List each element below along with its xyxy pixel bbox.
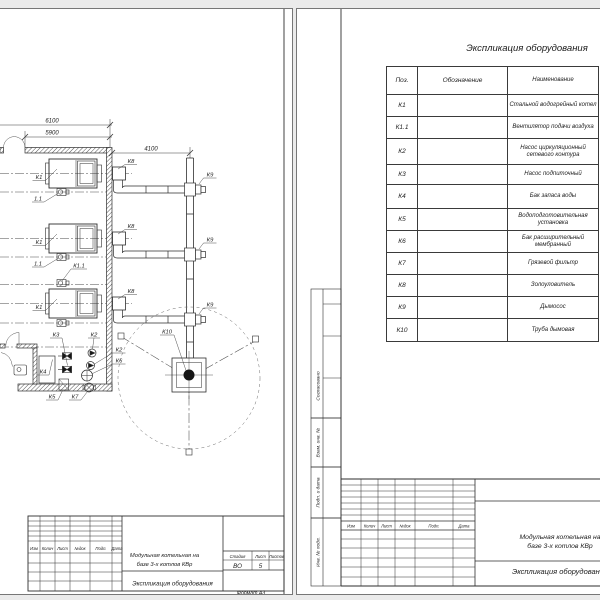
doc-title: Экспликация оборудования — [475, 567, 600, 576]
cell-name: Насос циркуляционный сетевого контура — [508, 139, 599, 165]
cell-designation — [418, 275, 508, 297]
drawing-sheet-list: Согласовано Взам. инв. № Подп. и дата Ин… — [296, 8, 600, 595]
cell-name: Золоуловитель — [508, 275, 599, 297]
cell-name: Труба дымовая — [508, 319, 599, 342]
cell-name: Насос подпиточный — [508, 165, 599, 185]
dim-inner: 5900 — [45, 131, 59, 137]
label-k9: К9 — [207, 303, 214, 309]
cell-pos: К1 — [387, 95, 418, 117]
label-k8: К8 — [128, 159, 135, 165]
col-header-name: Наименование — [508, 67, 599, 95]
network-pumps-k2 — [87, 349, 97, 370]
table-row: К5 Водоподготовительная установка — [387, 209, 599, 231]
cell-name: Водоподготовительная установка — [508, 209, 599, 231]
stamp-replace-inv: Взам. инв. № — [316, 428, 322, 458]
label-k8: К8 — [128, 289, 135, 295]
cell-designation — [418, 231, 508, 253]
table-row: К4 Бак запаса воды — [387, 185, 599, 209]
cell-name: Бак запаса воды — [508, 185, 599, 209]
label-k9: К9 — [207, 173, 214, 179]
label-k1: К1 — [36, 175, 43, 181]
label-k1-1: К1.1 — [73, 264, 84, 270]
table-row: К10 Труба дымовая — [387, 319, 599, 342]
cell-designation — [418, 95, 508, 117]
label-k7: К7 — [72, 395, 79, 401]
table-row: К8 Золоуловитель — [387, 275, 599, 297]
cell-pos: К6 — [387, 231, 418, 253]
chimney — [118, 307, 260, 455]
cell-pos: К4 — [387, 185, 418, 209]
rev-col: Колич — [42, 546, 54, 551]
rev-col: Подп. — [428, 524, 439, 529]
sink — [14, 365, 27, 375]
chimney-barrel — [184, 370, 195, 381]
sheets-label: Листов — [268, 554, 285, 559]
page-title: Экспликация оборудования — [427, 43, 600, 54]
sheet-value: 5 — [259, 563, 263, 570]
interior-doors — [1, 333, 19, 367]
project-name: Модульная котельная на базе 3-х котлов К… — [114, 552, 215, 569]
label-k9: К9 — [207, 238, 214, 244]
rev-col: Дата — [110, 546, 123, 551]
rev-col: Лист — [380, 524, 392, 529]
stamp-boxes — [311, 289, 341, 586]
label-k5: К5 — [49, 395, 56, 401]
guy-anchors — [118, 333, 259, 455]
stamp-agreed: Согласовано — [316, 371, 322, 401]
table-row: К1 Стальной водогрейный котел — [387, 95, 599, 117]
table-row: К9 Дымосос — [387, 297, 599, 319]
rev-col: Колич — [364, 524, 376, 529]
dim-total: 6100 — [45, 119, 59, 125]
rev-col: Лист — [56, 546, 68, 551]
sheet-label: Лист — [254, 554, 266, 559]
format-note: Формат А3 — [237, 591, 265, 596]
cell-name: Бак расширительный мембранный — [508, 231, 599, 253]
stage-value: ВО — [233, 563, 242, 570]
rev-col: Изм — [30, 546, 38, 551]
cell-designation — [418, 185, 508, 209]
smoke-exhausters — [185, 183, 206, 326]
label-k1-1-short: 1.1 — [34, 262, 42, 268]
table-row: К3 Насос подпиточный — [387, 165, 599, 185]
drawing-sheet-plan: 6100 5900 4100 К1 К1 К1 1.1 1.1 К1.1 К8 … — [0, 8, 293, 595]
table-row: К1.1 Вентилятор подачи воздуха — [387, 117, 599, 139]
label-k6: К6 — [116, 359, 123, 365]
project-name: Модульная котельная на базе 3-х котлов К… — [475, 533, 600, 551]
rev-col: Дата — [457, 524, 470, 529]
rev-col: №док — [74, 546, 86, 551]
rev-col: Изм — [347, 524, 355, 529]
makeup-pumps-k3 — [58, 353, 72, 373]
cell-name: Дымосос — [508, 297, 599, 319]
cell-designation — [418, 165, 508, 185]
table-row: К2 Насос циркуляционный сетевого контура — [387, 139, 599, 165]
table-header-row: Поз. Обозначение Наименование — [387, 67, 599, 95]
cell-name: Вентилятор подачи воздуха — [508, 117, 599, 139]
table-row: К6 Бак расширительный мембранный — [387, 231, 599, 253]
label-k8: К8 — [128, 224, 135, 230]
cell-pos: К1.1 — [387, 117, 418, 139]
stamp-sign-date: Подп. и дата — [316, 477, 322, 507]
cell-designation — [418, 253, 508, 275]
cell-designation — [418, 319, 508, 342]
col-header-pos: Поз. — [387, 67, 418, 95]
label-k2: К2 — [116, 348, 123, 354]
cell-name: Стальной водогрейный котел — [508, 95, 599, 117]
dim-right: 4100 — [144, 147, 158, 153]
table-row: К7 Грязевой фильтр — [387, 253, 599, 275]
label-k1: К1 — [36, 240, 43, 246]
cell-designation — [418, 139, 508, 165]
cell-pos: К8 — [387, 275, 418, 297]
equipment-table: Поз. Обозначение Наименование К1 Стально… — [386, 66, 599, 342]
label-k1: К1 — [36, 305, 43, 311]
label-k2: К2 — [91, 333, 98, 339]
cell-designation — [418, 117, 508, 139]
cell-designation — [418, 297, 508, 319]
boiler-plant-plan-svg: 6100 5900 4100 К1 К1 К1 1.1 1.1 К1.1 К8 … — [0, 9, 293, 595]
label-k1-1-short: 1.1 — [34, 197, 42, 203]
fan-3 — [57, 280, 69, 287]
cell-pos: К2 — [387, 139, 418, 165]
label-k4: К4 — [40, 370, 47, 376]
cell-pos: К9 — [387, 297, 418, 319]
cell-designation — [418, 209, 508, 231]
flue-tract — [113, 158, 206, 371]
cell-pos: К7 — [387, 253, 418, 275]
cell-name: Грязевой фильтр — [508, 253, 599, 275]
stage-label: Стадия — [230, 554, 246, 559]
air-fans — [57, 189, 69, 327]
rev-col: №док — [399, 524, 411, 529]
cell-pos: К10 — [387, 319, 418, 342]
doc-title: Экспликация оборудования — [132, 580, 213, 588]
cell-pos: К3 — [387, 165, 418, 185]
expansion-tank-k6 — [82, 370, 93, 381]
col-header-designation: Обозначение — [418, 67, 508, 95]
entrance-door — [4, 137, 26, 148]
label-k3: К3 — [53, 333, 60, 339]
rev-col: Подп. — [95, 546, 106, 551]
stamp-inv-orig: Инв. № подл. — [316, 537, 322, 567]
ash-collectors — [113, 167, 126, 310]
cell-pos: К5 — [387, 209, 418, 231]
label-k10: К10 — [162, 330, 173, 336]
